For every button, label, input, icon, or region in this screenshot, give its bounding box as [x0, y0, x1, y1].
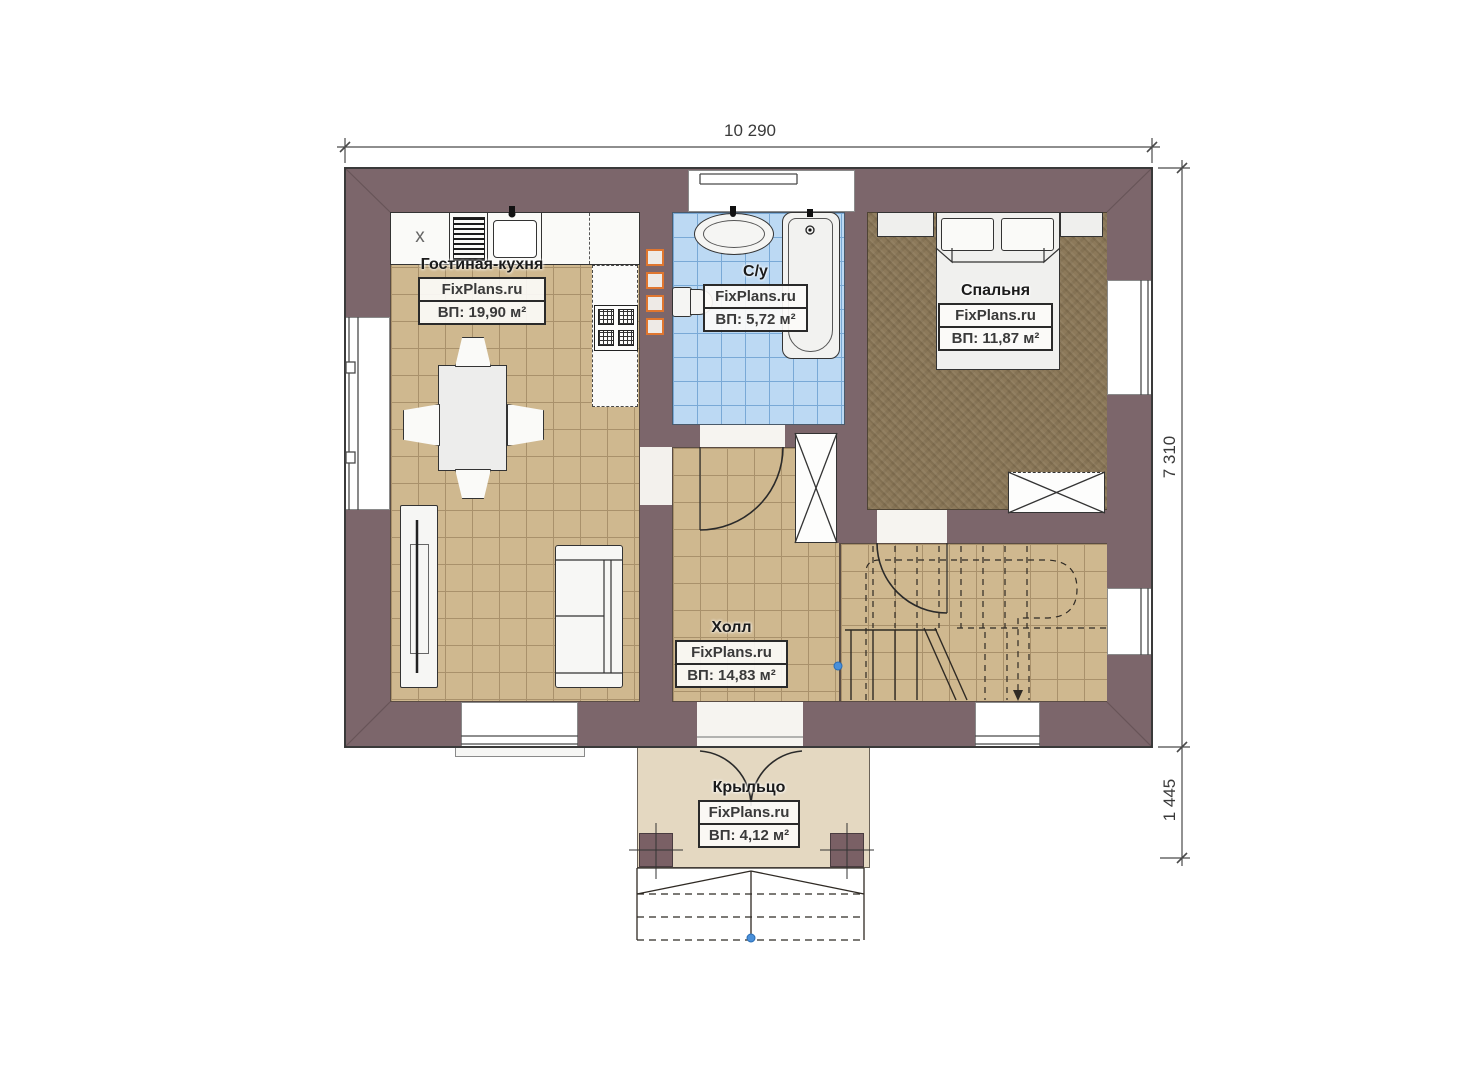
nightstand-right [1060, 212, 1103, 237]
floor-plan: x [0, 0, 1473, 1080]
label-bedroom: Спальня FixPlans.ru ВП: 11,87 м² [938, 282, 1053, 351]
nightstand-left [877, 212, 934, 237]
fridge-mark: x [405, 226, 435, 248]
entrance-door-opening [697, 702, 803, 747]
label-living-room: Гостиная-кухня FixPlans.ru ВП: 19,90 м² [418, 256, 546, 325]
window-stairs-bottom [975, 702, 1040, 747]
vent-marker [646, 295, 664, 312]
porch-pillar-left [639, 833, 673, 867]
window-bathroom-top [688, 170, 855, 212]
dimension-height-main: 7 310 [1160, 417, 1180, 497]
watermark: FixPlans.ru [677, 642, 786, 665]
room-name: Холл [675, 619, 788, 637]
window-bedroom-right [1107, 280, 1152, 395]
room-name: Крыльцо [698, 779, 800, 797]
watermark: FixPlans.ru [705, 286, 806, 309]
vent-marker [646, 249, 664, 266]
watermark: FixPlans.ru [940, 305, 1051, 328]
label-bathroom: С/у FixPlans.ru ВП: 5,72 м² [703, 263, 808, 332]
chair-left [403, 404, 440, 446]
bedroom-wardrobe [1008, 472, 1105, 513]
room-name: С/у [703, 263, 808, 281]
bath-sink [694, 213, 774, 255]
bathroom-door-opening [700, 425, 785, 447]
window-hall-right [1107, 588, 1152, 655]
window-living-left [345, 317, 390, 510]
toilet [672, 287, 692, 317]
stairs-floor [840, 543, 1110, 702]
room-area: ВП: 19,90 м² [420, 302, 544, 323]
kitchen-sink [493, 220, 537, 258]
bedroom-door-opening [877, 510, 947, 543]
room-name: Спальня [938, 282, 1053, 300]
hall-wardrobe [795, 433, 837, 543]
wall-bath-bedroom [845, 212, 867, 447]
sofa [555, 545, 623, 688]
window-living-bottom [461, 702, 578, 747]
porch-steps [637, 868, 864, 940]
room-name: Гостиная-кухня [418, 256, 546, 274]
pillow [941, 218, 994, 251]
watermark: FixPlans.ru [700, 802, 798, 825]
stove [594, 305, 638, 351]
room-area: ВП: 14,83 м² [677, 665, 786, 686]
room-area: ВП: 5,72 м² [705, 309, 806, 330]
watermark: FixPlans.ru [420, 279, 544, 302]
dimension-height-porch: 1 445 [1160, 760, 1180, 840]
porch-axis-marker [747, 934, 755, 942]
dining-table [438, 365, 507, 471]
chair-right [507, 404, 544, 446]
dimension-width-total: 10 290 [708, 121, 792, 141]
label-hall: Холл FixPlans.ru ВП: 14,83 м² [675, 619, 788, 688]
pillow [1001, 218, 1054, 251]
tv-stand [400, 505, 438, 688]
window-living-bottom-sill [455, 747, 585, 757]
room-area: ВП: 4,12 м² [700, 825, 798, 846]
wall-living-hall [640, 505, 672, 702]
living-hall-passage [640, 447, 672, 505]
dish-rack [453, 217, 485, 261]
porch-pillar-right [830, 833, 864, 867]
label-porch: Крыльцо FixPlans.ru ВП: 4,12 м² [698, 779, 800, 848]
vent-marker [646, 272, 664, 289]
vent-marker [646, 318, 664, 335]
room-area: ВП: 11,87 м² [940, 328, 1051, 349]
